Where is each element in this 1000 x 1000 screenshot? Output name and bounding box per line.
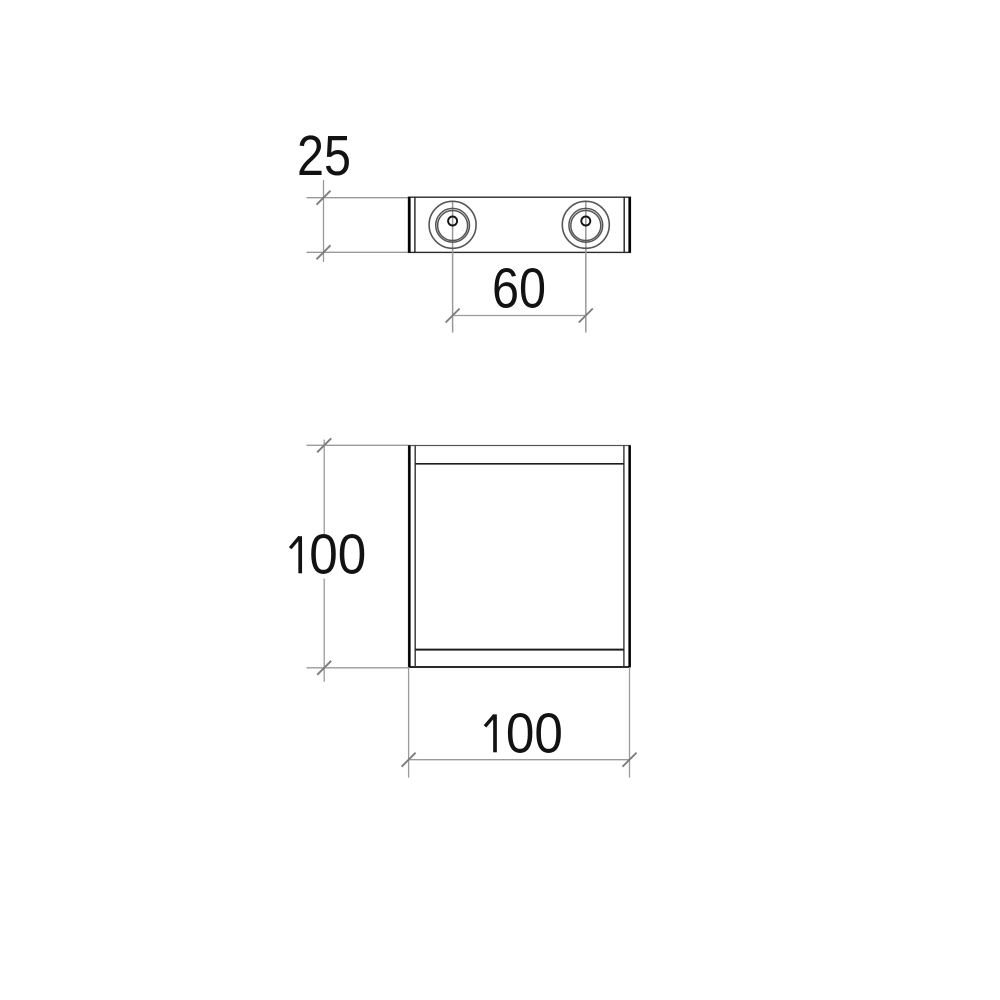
svg-text:00: 00	[309, 523, 366, 587]
svg-text:25: 25	[297, 124, 351, 188]
svg-text:00: 00	[506, 702, 563, 766]
svg-text:60: 60	[492, 257, 546, 321]
